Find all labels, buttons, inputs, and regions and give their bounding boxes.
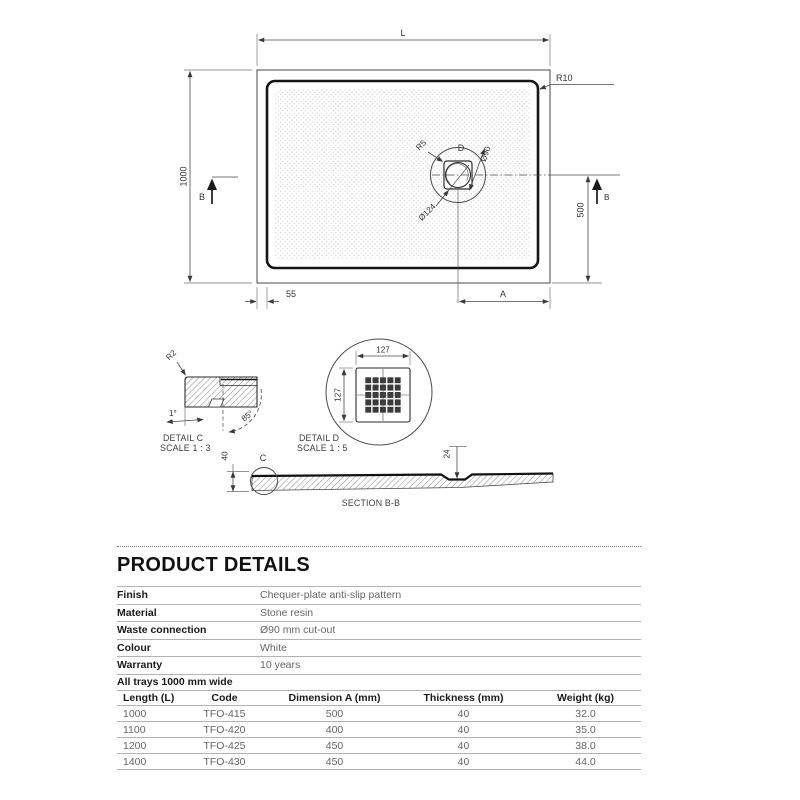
size-table-header-cell: Thickness (mm) [397,691,530,706]
product-details-title: PRODUCT DETAILS [117,554,641,577]
size-table-header-cell: Dimension A (mm) [272,691,397,706]
spec-row: Waste connection Ø90 mm cut-out [117,622,641,640]
detail-c-marker-label: C [260,453,267,463]
spec-label: Waste connection [117,622,260,639]
dimension-length-label: L [400,28,405,38]
detail-c-drawing: R2 1° 85° DETAIL C SCALE 1 : 3 [160,348,261,453]
size-table-cell: 1100 [117,722,177,738]
plan-view-drawing: L 1000 R10 B D R5 Ø90 [179,28,621,309]
size-table-cell: 32.0 [530,706,641,722]
detail-d-title: DETAIL D [299,433,339,443]
table-row: 1100 TFO-420 400 40 35.0 [117,722,641,738]
detail-c-radius-label: R2 [164,348,178,362]
spec-row: Material Stone resin [117,605,641,623]
size-table-header-cell: Weight (kg) [530,691,641,706]
spec-label: Material [117,605,260,622]
anti-slip-texture [275,89,530,260]
table-row: 1200 TFO-425 450 40 38.0 [117,738,641,754]
section-arrow-right: B [592,179,610,205]
size-table-cell: 1200 [117,738,177,754]
spec-label: Colour [117,640,260,657]
dimension-a-label: A [500,289,506,299]
detail-d-height-label: 127 [334,388,343,402]
spec-value: Stone resin [260,605,313,622]
datasheet-page: L 1000 R10 B D R5 Ø90 [0,0,800,800]
size-table-cell: 500 [272,706,397,722]
section-waste-depth-label: 24 [443,449,452,459]
spec-value: White [260,640,287,657]
detail-c-title: DETAIL C [163,433,204,443]
size-table-cell: 40 [397,754,530,770]
spec-value: 10 years [260,657,300,674]
spec-row: Colour White [117,640,641,658]
size-table-header-cell: Code [177,691,272,706]
edge-offset-label: 55 [286,289,296,299]
spec-value: Chequer-plate anti-slip pattern [260,587,401,604]
size-table-cell: 38.0 [530,738,641,754]
table-row: 1400 TFO-430 450 40 44.0 [117,754,641,770]
dotted-divider [117,546,641,547]
spec-value: Ø90 mm cut-out [260,622,335,639]
spec-row: Warranty 10 years [117,657,641,675]
section-arrow-left: B [199,177,238,204]
detail-c-angle-label: 85° [240,409,255,424]
detail-d-drawing: 127 127 DETAIL D SCALE 1 : 5 [297,339,432,453]
section-bb-title: SECTION B-B [342,498,400,508]
size-table-cell: 400 [272,722,397,738]
product-details-section: PRODUCT DETAILS Finish Chequer-plate ant… [117,540,641,770]
table-row: 1000 TFO-415 500 40 32.0 [117,706,641,722]
size-table-cell: 40 [397,738,530,754]
corner-radius-label: R10 [556,73,573,83]
spec-row: Finish Chequer-plate anti-slip pattern [117,586,641,605]
dimension-width-label: 1000 [179,166,189,186]
section-thickness-label: 40 [221,451,230,461]
size-table-cell: 450 [272,754,397,770]
size-table-cell: 44.0 [530,754,641,770]
size-table-cell: 1400 [117,754,177,770]
section-arrow-left-label: B [199,192,205,202]
size-table: Length (L) Code Dimension A (mm) Thickne… [117,691,641,771]
drain-detail-label: D [458,143,465,153]
size-table-cell: 1000 [117,706,177,722]
detail-c-slope-label: 1° [169,409,177,418]
center-offset-label: 500 [576,202,586,217]
detail-d-width-label: 127 [376,346,390,355]
size-table-cell: TFO-430 [177,754,272,770]
technical-drawing: L 1000 R10 B D R5 Ø90 [0,0,800,545]
size-table-cell: 40 [397,722,530,738]
size-table-cell: 40 [397,706,530,722]
detail-d-scale: SCALE 1 : 5 [297,443,348,453]
spec-table: Finish Chequer-plate anti-slip pattern M… [117,586,641,691]
size-table-cell: TFO-415 [177,706,272,722]
size-table-cell: 450 [272,738,397,754]
size-table-header-row: Length (L) Code Dimension A (mm) Thickne… [117,691,641,706]
section-arrow-right-label: B [604,193,610,202]
size-table-cell: TFO-425 [177,738,272,754]
detail-c-scale: SCALE 1 : 3 [160,443,211,453]
spec-label: Finish [117,587,260,604]
size-table-cell: TFO-420 [177,722,272,738]
spec-label: Warranty [117,657,260,674]
size-table-cell: 35.0 [530,722,641,738]
size-table-header-cell: Length (L) [117,691,177,706]
section-bb-drawing: C 40 24 SECTION B-B [221,447,554,509]
all-trays-note: All trays 1000 mm wide [117,675,641,691]
